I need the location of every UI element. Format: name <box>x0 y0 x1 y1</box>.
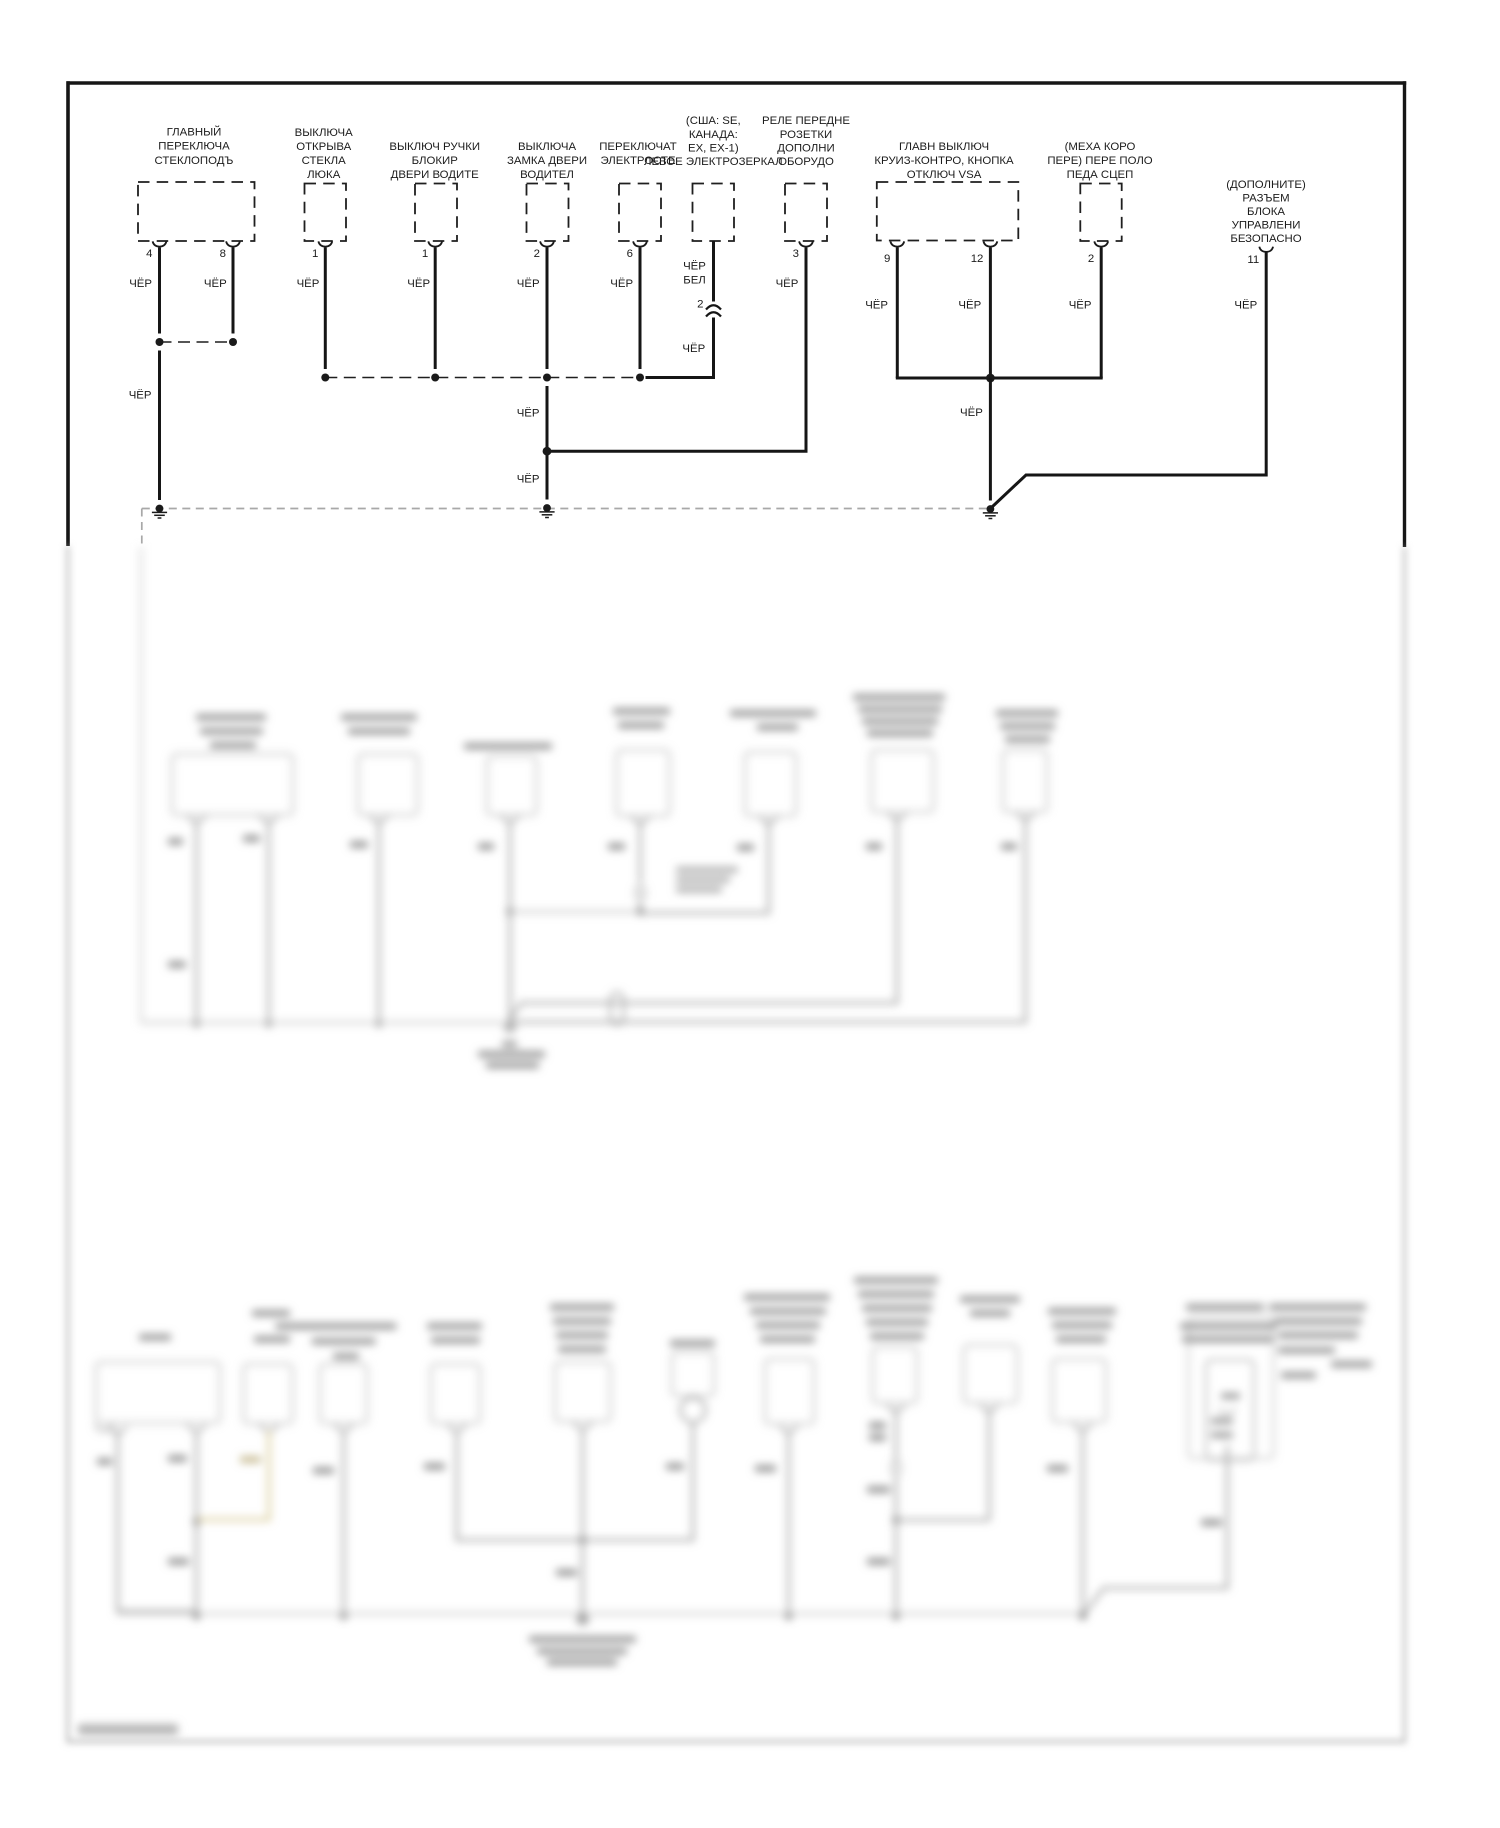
svg-text:СТЕКЛА: СТЕКЛА <box>302 155 347 167</box>
svg-text:2: 2 <box>697 299 703 311</box>
svg-text:1: 1 <box>422 248 428 260</box>
svg-text:ЧЁР: ЧЁР <box>129 390 152 402</box>
svg-text:ДОПОЛНИ: ДОПОЛНИ <box>777 143 834 155</box>
svg-text:(США: SE,: (США: SE, <box>686 115 741 127</box>
svg-text:8: 8 <box>220 248 226 260</box>
svg-text:ОТКРЫВА: ОТКРЫВА <box>296 141 351 153</box>
svg-text:ЧЁР: ЧЁР <box>960 407 983 419</box>
svg-text:ЧЁР: ЧЁР <box>204 278 227 290</box>
svg-text:СТЕКЛОПОДЪ: СТЕКЛОПОДЪ <box>155 155 234 167</box>
svg-text:11: 11 <box>1247 254 1259 266</box>
svg-text:БЛОКА: БЛОКА <box>1247 206 1285 218</box>
svg-text:ЧЁР: ЧЁР <box>407 278 430 290</box>
svg-text:ПЕРЕКЛЮЧА: ПЕРЕКЛЮЧА <box>158 141 230 153</box>
svg-text:ЧЁР: ЧЁР <box>958 300 981 312</box>
svg-text:2: 2 <box>534 248 540 260</box>
svg-text:2: 2 <box>1088 253 1094 265</box>
svg-text:ЧЁР: ЧЁР <box>776 278 799 290</box>
svg-text:ВЫКЛЮЧ РУЧКИ: ВЫКЛЮЧ РУЧКИ <box>389 141 480 153</box>
svg-text:ЧЁР: ЧЁР <box>297 278 320 290</box>
svg-text:ЛЕВОЕ ЭЛЕКТРОЗЕРКАЛ: ЛЕВОЕ ЭЛЕКТРОЗЕРКАЛ <box>644 156 783 168</box>
svg-text:12: 12 <box>971 253 984 265</box>
svg-text:EX, EX-1): EX, EX-1) <box>688 143 739 155</box>
svg-text:ЧЁР: ЧЁР <box>682 343 705 355</box>
svg-text:РАЗЪЕМ: РАЗЪЕМ <box>1242 193 1289 205</box>
svg-text:ЧЁР: ЧЁР <box>129 278 152 290</box>
svg-text:ПЕДА СЦЕП: ПЕДА СЦЕП <box>1067 169 1134 181</box>
svg-text:ВОДИТЕЛ: ВОДИТЕЛ <box>520 169 574 181</box>
svg-text:ЧЁР: ЧЁР <box>1069 300 1092 312</box>
svg-text:9: 9 <box>884 253 890 265</box>
svg-text:ОТКЛЮЧ VSA: ОТКЛЮЧ VSA <box>907 169 982 181</box>
svg-text:ДВЕРИ ВОДИТЕ: ДВЕРИ ВОДИТЕ <box>391 169 480 181</box>
svg-text:ЧЁР: ЧЁР <box>1234 300 1257 312</box>
svg-text:БЛОКИР: БЛОКИР <box>412 155 458 167</box>
svg-text:ОБОРУДО: ОБОРУДО <box>778 156 834 168</box>
svg-text:БЕЗОПАСНО: БЕЗОПАСНО <box>1230 233 1301 245</box>
svg-text:ПЕРЕКЛЮЧАТ: ПЕРЕКЛЮЧАТ <box>599 141 677 153</box>
svg-text:ВЫКЛЮЧА: ВЫКЛЮЧА <box>518 141 577 153</box>
svg-text:ЧЁР: ЧЁР <box>517 474 540 486</box>
svg-text:3: 3 <box>793 248 799 260</box>
svg-text:КАНАДА:: КАНАДА: <box>689 129 738 141</box>
svg-text:ЧЁР: ЧЁР <box>683 261 706 273</box>
svg-text:ВЫКЛЮЧА: ВЫКЛЮЧА <box>295 127 354 139</box>
svg-text:ЧЁР: ЧЁР <box>610 278 633 290</box>
svg-text:ЛЮКА: ЛЮКА <box>307 169 341 181</box>
svg-text:ГЛАВН ВЫКЛЮЧ: ГЛАВН ВЫКЛЮЧ <box>899 141 989 153</box>
svg-text:ЗАМКА ДВЕРИ: ЗАМКА ДВЕРИ <box>507 155 587 167</box>
svg-text:УПРАВЛЕНИ: УПРАВЛЕНИ <box>1232 220 1301 232</box>
svg-text:ЧЁР: ЧЁР <box>517 278 540 290</box>
svg-text:РОЗЕТКИ: РОЗЕТКИ <box>780 129 832 141</box>
svg-text:(ДОПОЛНИТЕ): (ДОПОЛНИТЕ) <box>1226 179 1306 191</box>
svg-text:ЧЁР: ЧЁР <box>865 300 888 312</box>
svg-text:ЧЁР: ЧЁР <box>517 408 540 420</box>
svg-text:4: 4 <box>146 248 152 260</box>
svg-text:ПЕРЕ) ПЕРЕ ПОЛО: ПЕРЕ) ПЕРЕ ПОЛО <box>1047 155 1152 167</box>
svg-text:КРУИЗ-КОНТРО, КНОПКА: КРУИЗ-КОНТРО, КНОПКА <box>874 155 1014 167</box>
svg-text:1: 1 <box>312 248 318 260</box>
svg-text:БЕЛ: БЕЛ <box>683 275 706 287</box>
svg-text:(МЕХА КОРО: (МЕХА КОРО <box>1065 141 1136 153</box>
svg-text:ГЛАВНЫЙ: ГЛАВНЫЙ <box>167 126 222 139</box>
svg-text:6: 6 <box>627 248 633 260</box>
svg-text:РЕЛЕ ПЕРЕДНЕ: РЕЛЕ ПЕРЕДНЕ <box>762 115 850 127</box>
